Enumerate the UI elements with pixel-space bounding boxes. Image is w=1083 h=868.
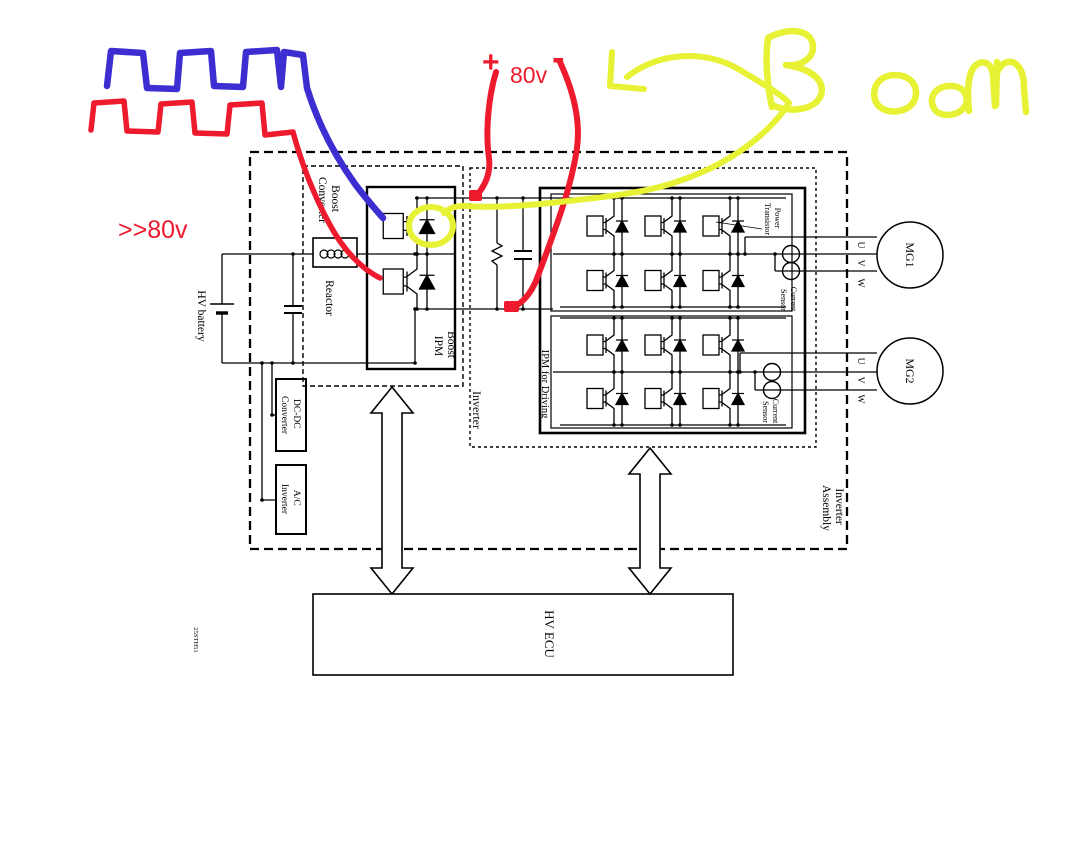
boom-label <box>767 31 1026 115</box>
junction-dot <box>425 196 429 200</box>
red-probe-blob <box>469 190 482 201</box>
junction-dot <box>260 361 264 365</box>
diode <box>732 340 744 351</box>
igbt-gate-box <box>703 389 719 409</box>
mg2-phase-u-label: U <box>855 358 865 365</box>
boom-letter-o <box>874 75 916 111</box>
diagram-page: HV battery Boost Converter Reactor Boost… <box>0 0 1083 868</box>
junction-dot <box>670 196 674 200</box>
boost-ipm-label: Boost IPM <box>432 331 457 361</box>
junction-dot <box>413 361 417 365</box>
junction-dot <box>728 252 732 256</box>
junction-dot <box>670 316 674 320</box>
boom-letter-m <box>968 62 1026 112</box>
dc-link-resistor <box>492 243 502 265</box>
hand-annotations: + 80v - >>80v <box>91 31 1026 312</box>
inverter-assembly-label: Inverter Assembly <box>820 485 845 531</box>
junction-dot <box>521 196 525 200</box>
igbt-gate-box <box>645 216 661 236</box>
junction-dot <box>521 307 525 311</box>
junction-dot <box>620 305 624 309</box>
junction-dot <box>413 252 417 256</box>
diode <box>732 276 744 287</box>
junction-dot <box>270 361 274 365</box>
mg1-phase-w-label: W <box>855 279 865 288</box>
junction-dot <box>291 361 295 365</box>
diode <box>616 276 628 287</box>
junction-dot <box>736 423 740 427</box>
junction-dot <box>728 316 732 320</box>
diode <box>674 394 686 405</box>
diode <box>616 221 628 232</box>
ipm-driving-label: IPM for Driving <box>539 350 550 420</box>
diode <box>420 275 435 289</box>
junction-dot <box>678 370 682 374</box>
junction-dot <box>670 423 674 427</box>
junction-dot <box>612 305 616 309</box>
red-probe-blob <box>504 301 519 312</box>
igbt-gate-box <box>383 269 403 294</box>
junction-dot <box>670 370 674 374</box>
junction-dot <box>620 370 624 374</box>
junction-dot <box>728 423 732 427</box>
mg1-label: MG1 <box>903 242 917 267</box>
junction-dot <box>415 196 419 200</box>
igbt-gate-box <box>587 335 603 355</box>
inverter-assembly-diagram: HV battery Boost Converter Reactor Boost… <box>0 0 1083 868</box>
mg1-phase-u-label: U <box>855 242 865 249</box>
arrow-boost-ecu <box>371 387 413 594</box>
junction-dot <box>260 498 264 502</box>
junction-dot <box>678 305 682 309</box>
diode <box>420 220 435 234</box>
mg2-phase-v-label: V <box>855 377 865 384</box>
igbt-gate-box <box>645 389 661 409</box>
junction-dot <box>620 316 624 320</box>
junction-dot <box>620 252 624 256</box>
junction-dot <box>738 370 742 374</box>
arrow-inverter-ecu <box>629 448 671 594</box>
inverter-label: Inverter <box>470 391 484 429</box>
capacitor-symbol <box>284 306 302 313</box>
reactor-label: Reactor <box>323 280 335 316</box>
igbt-gate-box <box>587 216 603 236</box>
igbt-gate-box <box>645 335 661 355</box>
junction-dot <box>736 316 740 320</box>
igbt-gate-box <box>645 271 661 291</box>
circuit-linework <box>210 152 943 675</box>
junction-dot <box>425 252 429 256</box>
igbt-gate-box <box>587 271 603 291</box>
junction-dot <box>612 252 616 256</box>
diode <box>732 394 744 405</box>
minus-label: - <box>552 37 565 79</box>
junction-dot <box>678 196 682 200</box>
mg1-phase-v-label: V <box>855 260 865 267</box>
power-transistor-label: Power Transistor <box>763 203 782 235</box>
mg2-phase-w-label: W <box>855 395 865 404</box>
overvoltage-label: >>80v <box>118 216 188 244</box>
diode <box>616 340 628 351</box>
diode <box>674 276 686 287</box>
part-code-label: 25STH51 <box>192 627 199 652</box>
diode <box>616 394 628 405</box>
junction-dot <box>678 423 682 427</box>
junction-dot <box>728 370 732 374</box>
junction-dot <box>773 252 777 256</box>
junction-dot <box>736 196 740 200</box>
junction-dot <box>425 307 429 311</box>
diode <box>674 340 686 351</box>
junction-dot <box>736 305 740 309</box>
boom-letter-b <box>767 31 822 109</box>
junction-dot <box>270 413 274 417</box>
diode <box>732 221 744 232</box>
igbt-gate-box <box>703 335 719 355</box>
igbt-gate-box <box>703 271 719 291</box>
junction-dot <box>670 305 674 309</box>
current-sensor2-label: Current Sensor <box>761 399 780 425</box>
red-lead-positive <box>478 72 496 194</box>
boom-letter-o <box>932 86 967 115</box>
diagram-labels: HV battery Boost Converter Reactor Boost… <box>192 177 917 658</box>
junction-dot <box>728 305 732 309</box>
igbt-gate-box <box>703 216 719 236</box>
junction-dot <box>620 423 624 427</box>
junction-dot <box>495 196 499 200</box>
junction-dot <box>678 252 682 256</box>
hv-ecu-label: HV ECU <box>542 610 557 658</box>
junction-dot <box>736 252 740 256</box>
voltage-label: 80v <box>510 62 548 88</box>
junction-dot <box>413 307 417 311</box>
igbt-gate-box <box>383 214 403 239</box>
junction-dot <box>728 196 732 200</box>
junction-dot <box>495 307 499 311</box>
junction-dot <box>753 370 757 374</box>
junction-dot <box>612 370 616 374</box>
ac-inverter-label: A/C Inverter <box>279 484 301 515</box>
junction-dot <box>612 316 616 320</box>
current-sensor1-label: Current Sensor <box>779 287 798 313</box>
mg2-label: MG2 <box>903 358 917 383</box>
junction-dot <box>678 316 682 320</box>
hv-ecu-box <box>313 594 733 675</box>
plus-label: + <box>482 46 500 79</box>
dcdc-converter-label: DC-DC Converter <box>279 396 301 435</box>
junction-dot <box>291 252 295 256</box>
red-lead-negative <box>516 62 578 306</box>
junction-dot <box>743 252 747 256</box>
dc-link-capacitor <box>514 251 532 259</box>
igbt-gate-box <box>587 389 603 409</box>
junction-dot <box>612 423 616 427</box>
diode <box>674 221 686 232</box>
hv-battery-label: HV battery <box>195 290 207 341</box>
junction-dot <box>670 252 674 256</box>
